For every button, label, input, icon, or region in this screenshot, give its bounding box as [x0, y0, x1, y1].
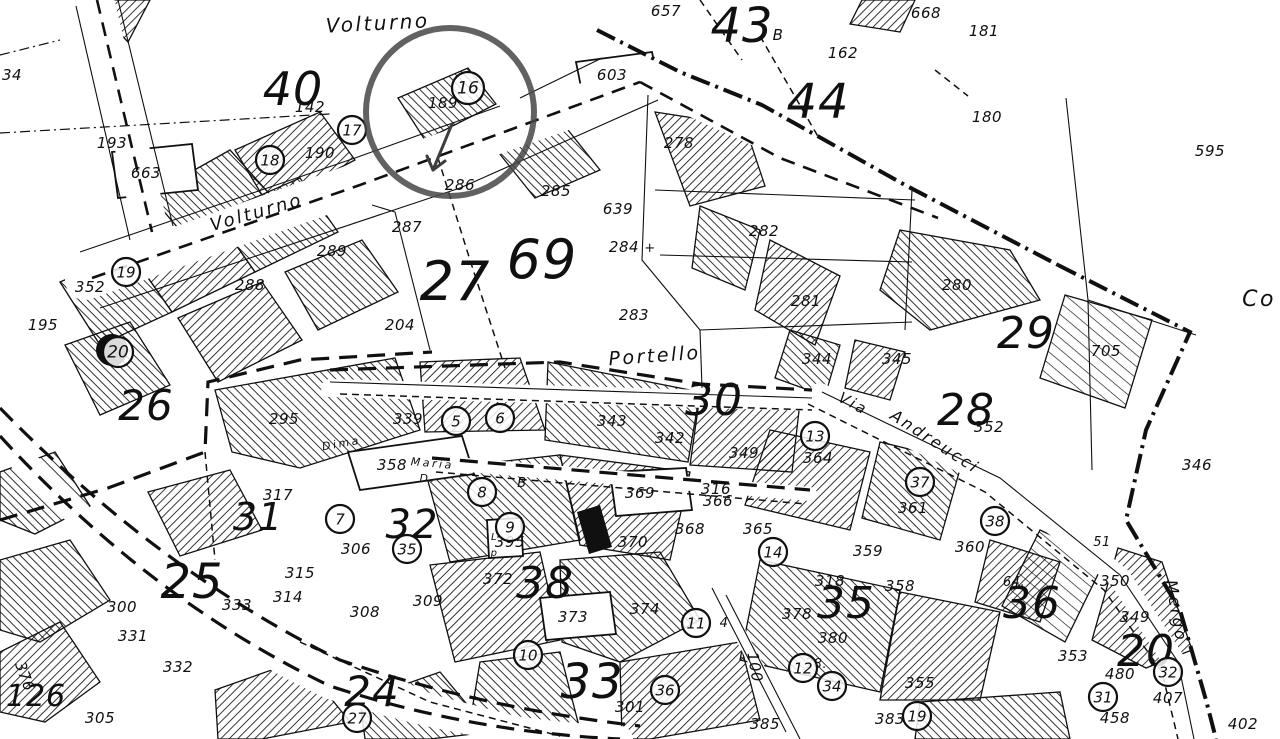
marker-number: 36 — [655, 682, 674, 700]
marker-number: 14 — [763, 544, 782, 562]
marker-number: 12 — [793, 660, 812, 678]
marker-number: 10 — [518, 647, 537, 665]
parcel-number: 360 — [955, 538, 985, 556]
cadastral-map-svg: 14219366334657603668181162180595B1891901… — [0, 0, 1280, 739]
zone-number: 43 — [710, 0, 773, 54]
hatched-block — [880, 592, 1000, 700]
marker-number: 5 — [451, 413, 461, 431]
zone-number: 29 — [997, 308, 1055, 359]
parcel-number: 639 — [603, 200, 633, 218]
marker-number: 34 — [822, 678, 841, 696]
parcel-number: 308 — [350, 603, 380, 621]
parcel-number: 370 — [618, 533, 648, 551]
circled-marker: 36 — [651, 676, 679, 704]
parcel-number: 287 — [392, 218, 422, 236]
zone-number: 26 — [118, 381, 173, 430]
zone-number: 33 — [560, 654, 623, 710]
parcel-number: 344 — [802, 350, 832, 368]
zone-number: 30 — [685, 375, 743, 426]
marker-number: 7 — [335, 511, 345, 529]
marker-number: 35 — [397, 541, 416, 559]
parcel-number: 332 — [163, 658, 193, 676]
circled-marker: 34 — [818, 672, 846, 700]
circled-marker: 10 — [514, 641, 542, 669]
street-label: Co — [1242, 287, 1276, 312]
parcel-number: 195 — [28, 316, 58, 334]
parcel-number: 339 — [393, 410, 423, 428]
marker-number: 9 — [505, 519, 515, 537]
parcel-number: 343 — [597, 412, 627, 430]
parcel-number: 373 — [558, 608, 588, 626]
parcel-number: 355 — [905, 674, 935, 692]
parcel-number: 345 — [882, 350, 912, 368]
parcel-number: 349 — [1120, 608, 1150, 626]
parcel-number: 353 — [1058, 647, 1088, 665]
parcel-number: 374 — [630, 600, 660, 618]
parcel-number: 289 — [317, 242, 347, 260]
parcel-number: 383 — [875, 710, 905, 728]
zone-number: 38 — [516, 558, 574, 609]
parcel-number: 369 — [625, 484, 655, 502]
parcel-number: 281 — [791, 292, 821, 310]
zone-number: 25 — [160, 554, 223, 610]
parcel-number: 282 — [749, 222, 779, 240]
parcel-number: 4 — [720, 616, 729, 631]
marker-number: 19 — [116, 264, 135, 282]
circled-marker: 7 — [326, 505, 354, 533]
parcel-number: 285 — [541, 182, 571, 200]
circled-marker: 27 — [343, 704, 371, 732]
parcel-number: 162 — [828, 44, 858, 62]
parcel-number: 361 — [898, 499, 928, 517]
parcel-number: 280 — [942, 276, 972, 294]
parcel-number: 51 — [1093, 535, 1111, 550]
parcel-number: 204 — [385, 316, 415, 334]
parcel-number: 300 — [107, 598, 137, 616]
parcel-number: 331 — [118, 627, 148, 645]
parcel-number: B — [517, 476, 526, 491]
circled-marker: 13 — [801, 422, 829, 450]
parcel-number: 368 — [675, 520, 705, 538]
zone-number: 27 — [420, 250, 491, 313]
parcel-number: 358 — [377, 456, 407, 474]
circled-marker: 19 — [903, 702, 931, 730]
scanned-cadastral-map-page: 14219366334657603668181162180595B1891901… — [0, 0, 1280, 739]
circled-marker: 16 — [452, 72, 484, 104]
parcel-number: 595 — [1195, 142, 1225, 160]
parcel-number: 284 — [609, 238, 639, 256]
parcel-number: 333 — [222, 596, 252, 614]
marker-number: 6 — [495, 410, 505, 428]
circled-marker: 11 — [682, 609, 710, 637]
parcel-number: 306 — [341, 540, 371, 558]
parcel-number: 305 — [85, 709, 115, 727]
circled-marker: 31 — [1089, 683, 1117, 711]
parcel-number: 358 — [885, 577, 915, 595]
marker-number: 16 — [457, 79, 479, 99]
parcel-number: L — [491, 532, 497, 543]
parcel-number: B — [773, 26, 784, 44]
parcel-number: 315 — [285, 564, 315, 582]
marker-number: 38 — [985, 513, 1004, 531]
parcel-number: 34 — [2, 66, 22, 84]
circled-marker: 12 — [789, 654, 817, 682]
parcel-number: + — [644, 241, 655, 256]
zone-number: 28 — [937, 385, 995, 436]
parcel-number: 603 — [597, 66, 627, 84]
marker-number: 20 — [107, 343, 129, 363]
circled-marker: 35 — [393, 535, 421, 563]
parcel-number: 316 — [701, 480, 731, 498]
marker-number: 32 — [1158, 664, 1177, 682]
parcel-number: 283 — [619, 306, 649, 324]
circled-marker: 19 — [112, 258, 140, 286]
marker-number: 18 — [260, 152, 279, 170]
parcel-number: 352 — [75, 278, 105, 296]
marker-number: 27 — [347, 710, 367, 728]
zone-number: 126 — [6, 679, 66, 714]
circled-marker: 9 — [496, 513, 524, 541]
parcel-number: 349 — [729, 444, 759, 462]
circled-marker: 20 — [103, 337, 133, 367]
parcel-number: 342 — [655, 429, 685, 447]
parcel-number: 380 — [818, 629, 848, 647]
parcel-number: 180 — [972, 108, 1002, 126]
circled-marker: 32 — [1154, 658, 1182, 686]
marker-number: 19 — [907, 708, 926, 726]
parcel-number: 364 — [803, 449, 833, 467]
circled-marker: 38 — [981, 507, 1009, 535]
parcel-number: 309 — [413, 592, 443, 610]
zone-number: 44 — [786, 74, 849, 130]
parcel-number: 346 — [1182, 456, 1212, 474]
parcel-number: p — [490, 548, 498, 559]
zone-number: 35 — [817, 578, 875, 629]
circled-marker: 5 — [442, 407, 470, 435]
marker-number: 37 — [910, 474, 930, 492]
parcel-number: 663 — [131, 164, 161, 182]
parcel-number: 668 — [911, 4, 941, 22]
parcel-number: 372 — [483, 570, 513, 588]
marker-number: 17 — [342, 122, 362, 140]
circled-marker: 18 — [256, 146, 284, 174]
marker-number: 31 — [1093, 689, 1112, 707]
circled-marker: 17 — [338, 116, 366, 144]
circled-marker: 14 — [759, 538, 787, 566]
marker-number: 13 — [805, 428, 824, 446]
circled-marker: 37 — [906, 468, 934, 496]
parcel-number: 190 — [305, 144, 335, 162]
zone-number: 69 — [507, 228, 578, 291]
zone-number: 36 — [1003, 578, 1061, 629]
circled-marker: 8 — [468, 478, 496, 506]
zone-number: 40 — [263, 62, 324, 116]
parcel-number: 407 — [1153, 689, 1183, 707]
parcel-number: 378 — [782, 605, 812, 623]
parcel-number: 193 — [97, 134, 127, 152]
parcel-number: 350 — [1100, 572, 1130, 590]
circled-marker: 6 — [486, 404, 514, 432]
street-label: D. — [420, 472, 437, 485]
parcel-number: 365 — [743, 520, 773, 538]
parcel-number: 278 — [664, 134, 694, 152]
parcel-number: 288 — [235, 276, 265, 294]
parcel-number: 359 — [853, 542, 883, 560]
parcel-number: 385 — [750, 715, 780, 733]
marker-number: 8 — [477, 484, 487, 502]
zone-number: 31 — [233, 495, 283, 539]
parcel-number: 314 — [273, 588, 303, 606]
parcel-number: 402 — [1228, 715, 1258, 733]
parcel-number: 295 — [269, 410, 299, 428]
marker-number: 11 — [686, 615, 705, 633]
parcel-number: 705 — [1091, 342, 1121, 360]
parcel-number: 181 — [969, 22, 999, 40]
parcel-number: 657 — [651, 2, 681, 20]
